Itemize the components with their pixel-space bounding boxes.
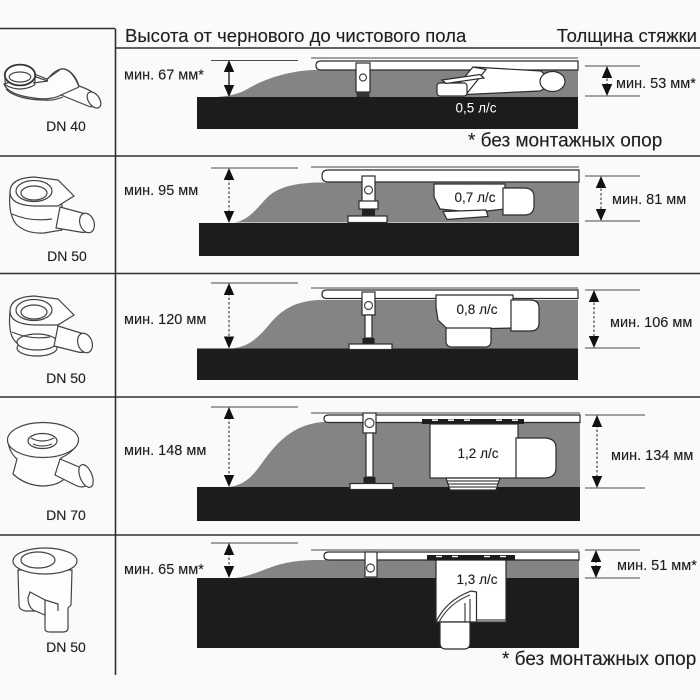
svg-text:DN 70: DN 70 [46, 507, 86, 523]
svg-text:1,2 л/с: 1,2 л/с [458, 446, 499, 461]
svg-text:мин. 51 мм*: мин. 51 мм* [617, 558, 697, 574]
svg-text:0,8 л/с: 0,8 л/с [457, 302, 498, 317]
svg-text:мин. 106 мм: мин. 106 мм [610, 315, 692, 331]
svg-text:мин. 53 мм*: мин. 53 мм* [616, 76, 696, 92]
svg-text:мин. 65 мм*: мин. 65 мм* [124, 562, 204, 578]
svg-text:мин. 120 мм: мин. 120 мм [124, 312, 206, 328]
svg-text:мин. 67 мм*: мин. 67 мм* [124, 68, 204, 84]
svg-text:DN 50: DN 50 [46, 370, 86, 386]
svg-text:1,3 л/с: 1,3 л/с [457, 572, 498, 587]
svg-text:DN 40: DN 40 [46, 118, 86, 134]
svg-text:Толщина стяжки: Толщина стяжки [557, 25, 697, 46]
svg-text:DN 50: DN 50 [46, 639, 86, 655]
svg-text:0,7 л/с: 0,7 л/с [455, 190, 496, 205]
svg-text:мин. 95 мм: мин. 95 мм [124, 183, 198, 199]
svg-text:* без монтажных опор: * без монтажных опор [468, 131, 662, 152]
svg-text:мин. 81 мм: мин. 81 мм [612, 192, 686, 208]
svg-text:* без монтажных опор: * без монтажных опор [502, 649, 696, 670]
svg-text:DN 50: DN 50 [47, 248, 87, 264]
svg-text:мин. 148 мм: мин. 148 мм [124, 443, 206, 459]
svg-text:0,5 л/с: 0,5 л/с [456, 101, 497, 116]
svg-text:мин. 134 мм: мин. 134 мм [611, 448, 693, 464]
svg-text:Высота от чернового до чистово: Высота от чернового до чистового пола [125, 25, 467, 46]
